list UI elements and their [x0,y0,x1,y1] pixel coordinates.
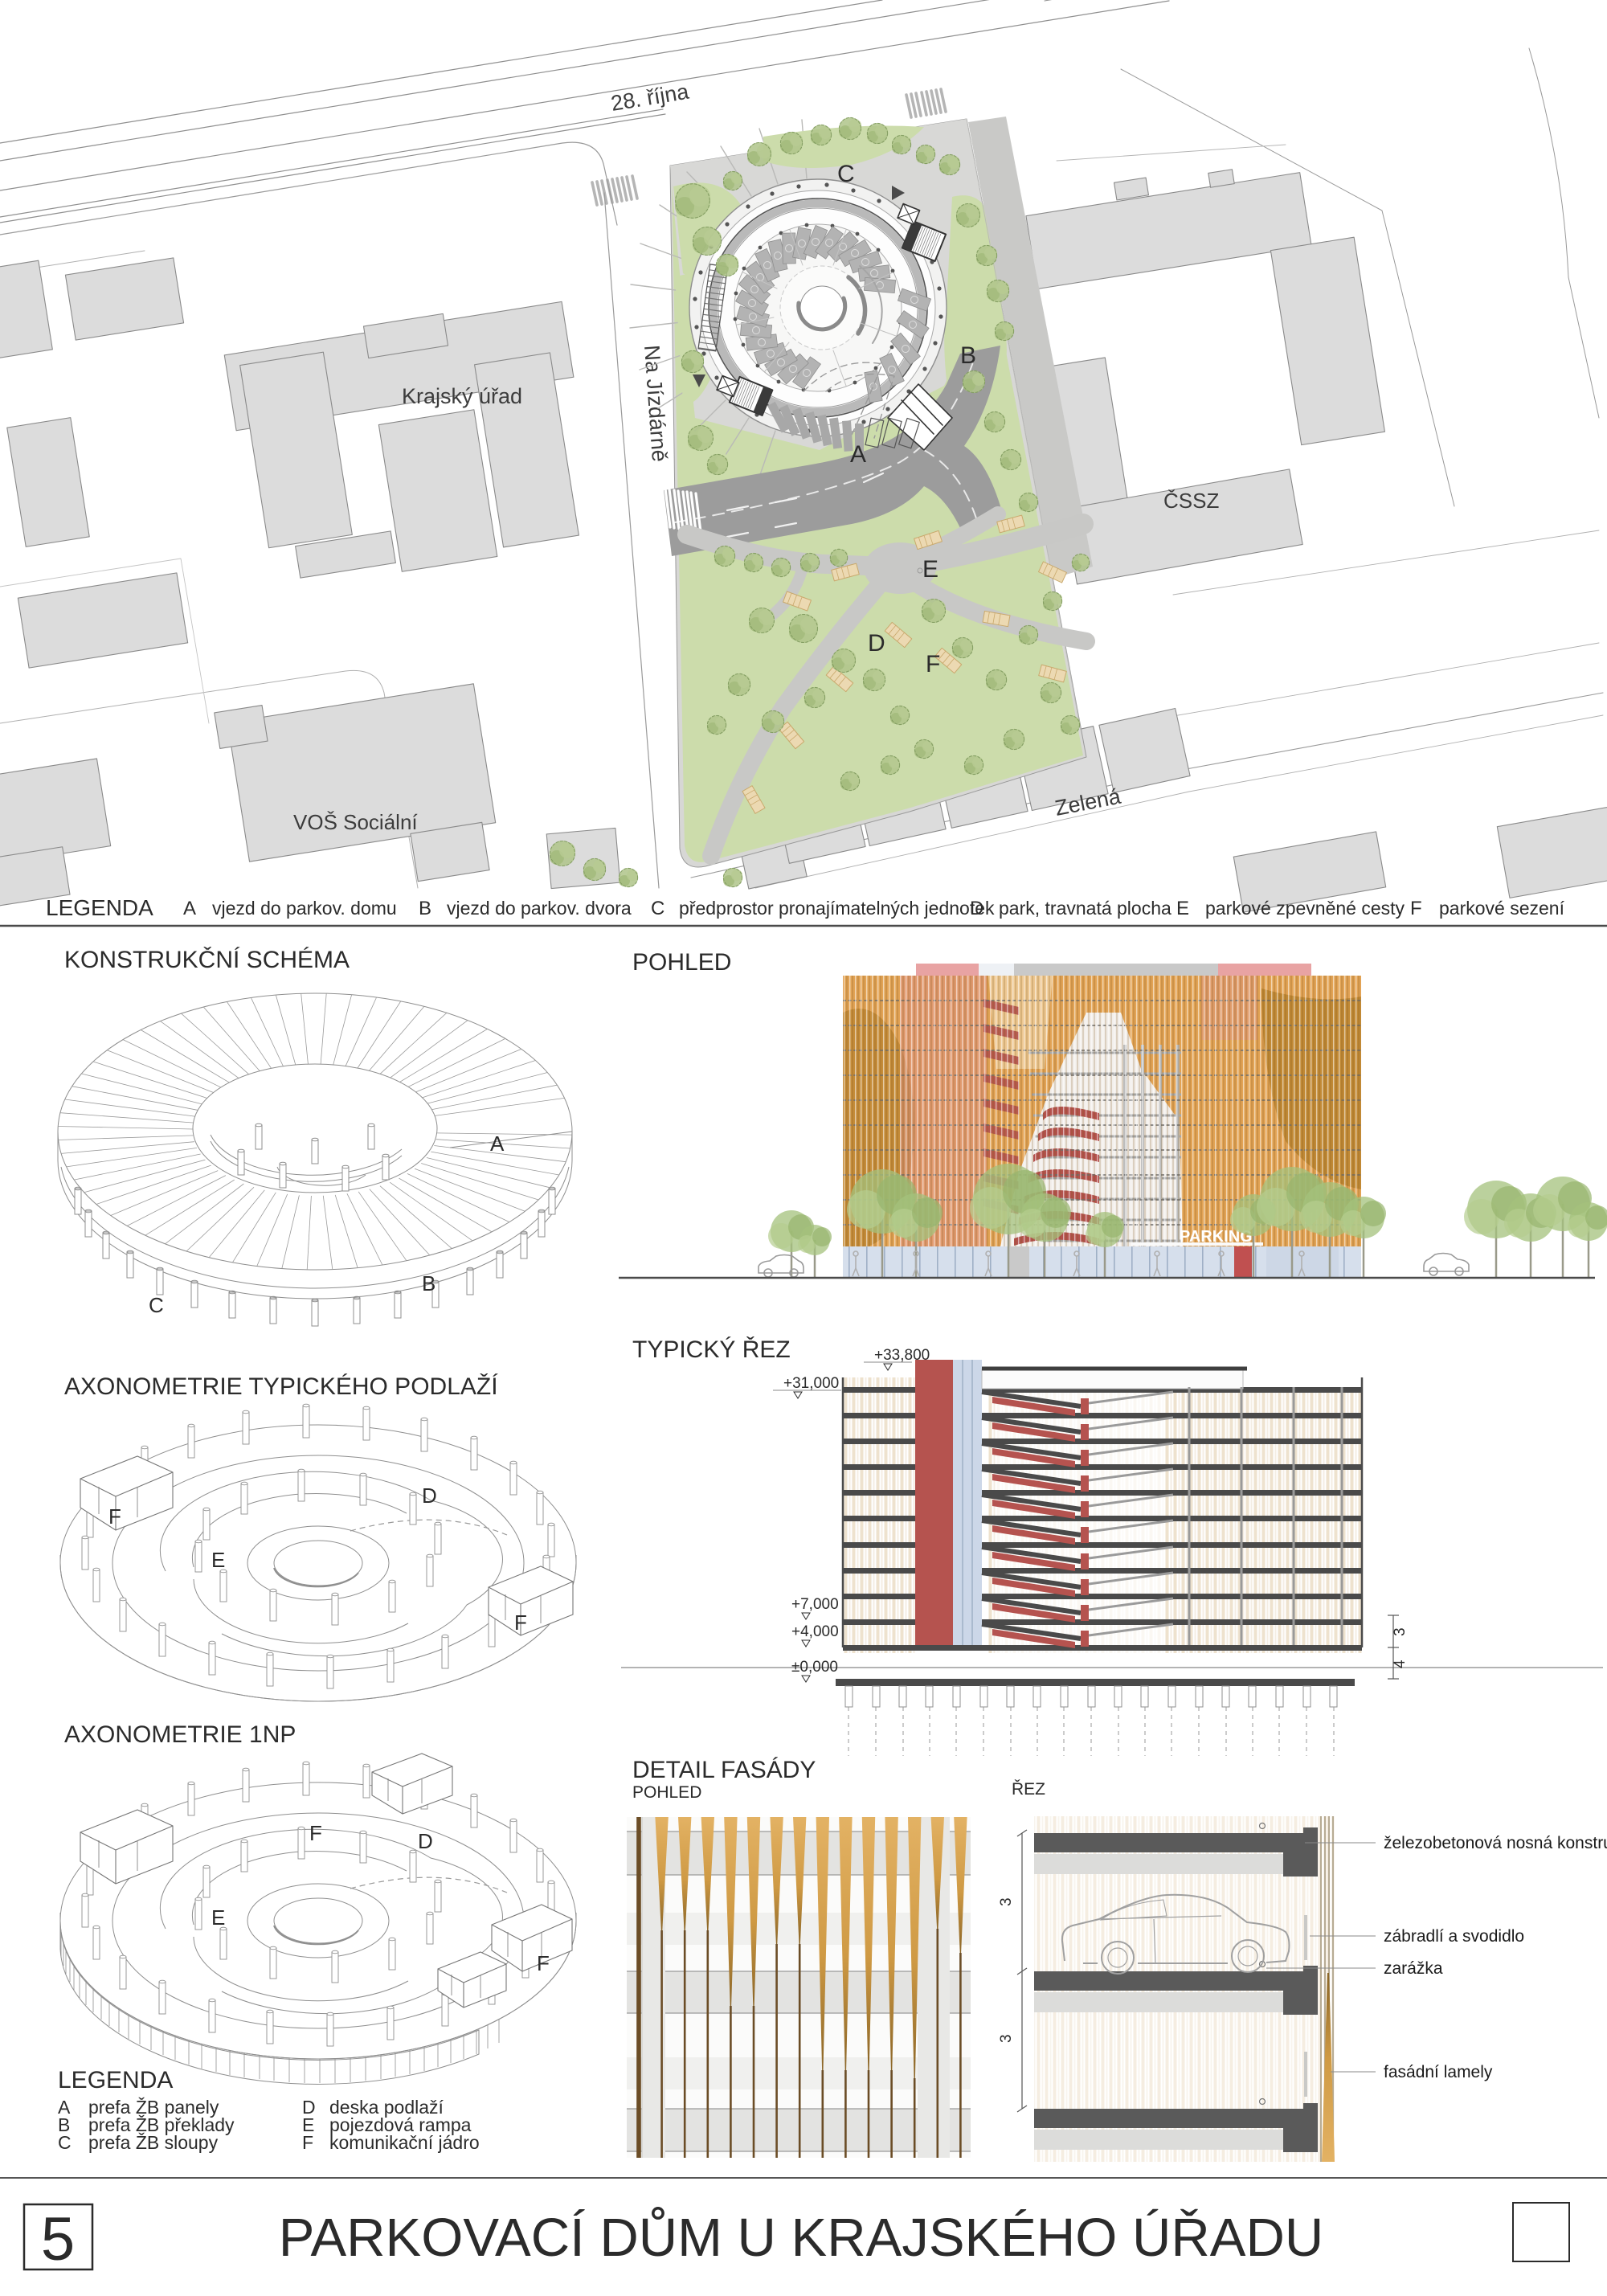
svg-text:E: E [211,1548,225,1572]
svg-text:F: F [309,1821,322,1845]
svg-text:+31,000: +31,000 [783,1375,839,1392]
svg-text:E: E [211,1905,225,1930]
svg-text:vjezd do parkov. domu: vjezd do parkov. domu [212,898,397,919]
svg-text:F: F [537,1951,550,1975]
svg-text:F: F [926,651,940,677]
svg-text:VOŠ Sociální: VOŠ Sociální [293,810,418,834]
svg-text:+7,000: +7,000 [791,1596,839,1613]
svg-text:C: C [651,898,664,919]
svg-text:3: 3 [998,2034,1015,2043]
svg-text:C: C [58,2132,72,2153]
svg-text:D: D [422,1484,437,1508]
svg-text:3: 3 [1392,1627,1409,1636]
svg-text:zábradlí a svodidlo: zábradlí a svodidlo [1384,1927,1524,1946]
svg-text:F: F [302,2132,313,2153]
svg-text:LEGENDA: LEGENDA [46,895,153,920]
svg-text:Krajský úřad: Krajský úřad [402,384,522,408]
svg-text:parkové zpevněné cesty: parkové zpevněné cesty [1205,898,1405,919]
svg-text:3: 3 [998,1897,1015,1906]
svg-text:D: D [868,630,885,657]
svg-text:B: B [419,898,431,919]
svg-text:park, travnatá plocha: park, travnatá plocha [999,898,1172,919]
svg-text:KONSTRUKČNÍ SCHÉMA: KONSTRUKČNÍ SCHÉMA [64,946,350,973]
svg-text:prefa ŽB sloupy: prefa ŽB sloupy [88,2132,219,2153]
svg-text:+4,000: +4,000 [791,1623,839,1640]
svg-text:fasádní lamely: fasádní lamely [1384,2063,1493,2081]
svg-text:F: F [108,1504,121,1529]
svg-text:D: D [970,898,983,919]
svg-text:5: 5 [41,2205,75,2273]
svg-text:TYPICKÝ ŘEZ: TYPICKÝ ŘEZ [632,1336,791,1363]
svg-text:4: 4 [1392,1660,1409,1668]
svg-text:B: B [422,1271,435,1295]
svg-text:A: A [850,441,866,468]
svg-text:A: A [183,898,196,919]
svg-text:F: F [514,1610,527,1635]
svg-text:±0,000: ±0,000 [791,1659,838,1676]
svg-text:železobetonová nosná konstrukc: železobetonová nosná konstrukce [1384,1834,1607,1852]
svg-text:parkové sezení: parkové sezení [1439,898,1565,919]
svg-text:E: E [1176,898,1189,919]
svg-text:DETAIL FASÁDY: DETAIL FASÁDY [632,1757,816,1783]
svg-text:+33,800: +33,800 [874,1347,930,1364]
svg-text:D: D [418,1829,433,1853]
svg-text:POHLED: POHLED [632,1783,701,1802]
svg-text:vjezd do parkov. dvora: vjezd do parkov. dvora [447,898,632,919]
svg-text:AXONOMETRIE TYPICKÉHO PODLAŽÍ: AXONOMETRIE TYPICKÉHO PODLAŽÍ [64,1373,498,1400]
svg-text:B: B [960,342,976,369]
svg-text:předprostor pronajímatelných j: předprostor pronajímatelných jednotek [679,898,995,919]
svg-text:POHLED: POHLED [632,949,731,976]
svg-text:E: E [922,556,938,583]
svg-text:ČSSZ: ČSSZ [1163,489,1219,513]
svg-text:LEGENDA: LEGENDA [58,2067,173,2093]
svg-text:A: A [490,1132,505,1156]
svg-text:C: C [149,1293,164,1317]
svg-text:PARKOVACÍ DŮM U KRAJSKÉHO ÚŘAD: PARKOVACÍ DŮM U KRAJSKÉHO ÚŘADU [279,2207,1323,2268]
svg-text:AXONOMETRIE 1NP: AXONOMETRIE 1NP [64,1721,296,1748]
svg-text:C: C [837,161,855,187]
svg-text:komunikační jádro: komunikační jádro [329,2132,480,2153]
svg-text:F: F [1410,898,1422,919]
svg-text:zarážka: zarážka [1384,1959,1443,1978]
svg-text:ŘEZ: ŘEZ [1012,1780,1045,1799]
